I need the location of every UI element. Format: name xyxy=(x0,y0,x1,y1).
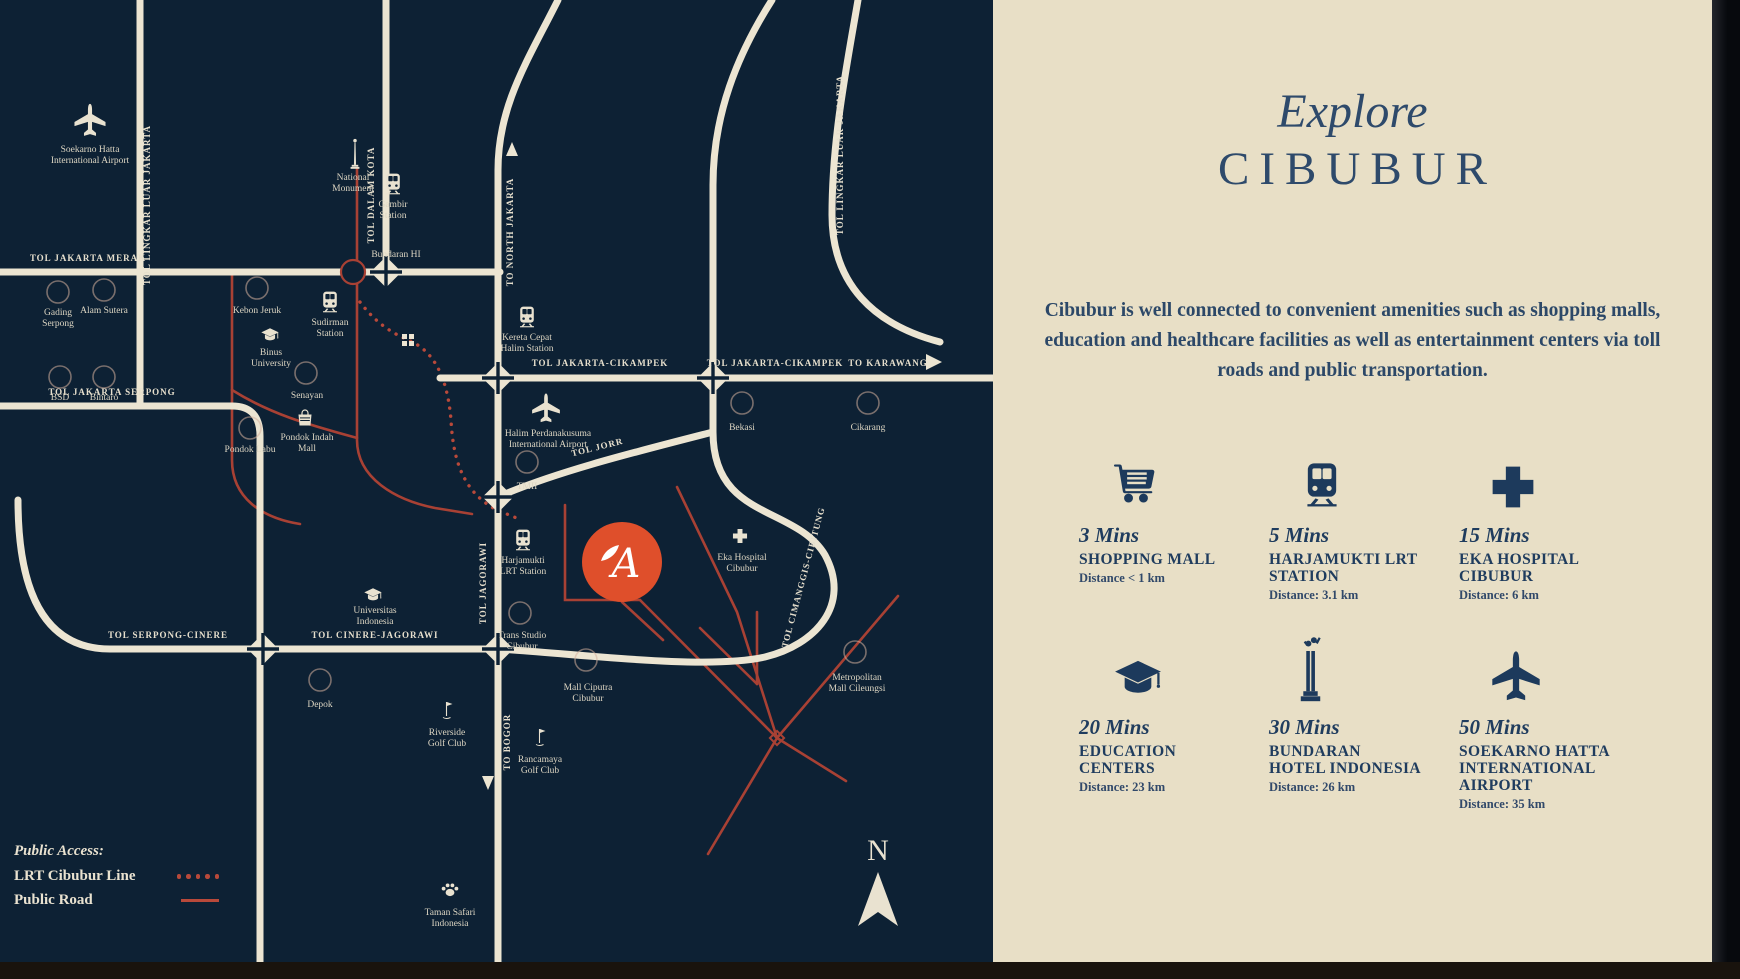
amenity-item-cart: 3 Mins SHOPPING MALL Distance < 1 km xyxy=(1079,437,1261,603)
legend-item-label: LRT Cibubur Line xyxy=(14,868,135,885)
amenity-item-monument: 30 Mins BUNDARAN HOTEL INDONESIA Distanc… xyxy=(1269,629,1451,812)
amenity-minutes: 3 Mins xyxy=(1079,523,1261,548)
amenity-name: EDUCATION CENTERS xyxy=(1079,743,1261,777)
map-road-label: TOL JAKARTA-CIKAMPEK xyxy=(707,358,844,368)
map-place-label: RiversideGolf Club xyxy=(428,728,467,749)
dotted-line-sample xyxy=(177,874,220,879)
solid-line-sample xyxy=(181,899,219,902)
map-place-label: GambirStation xyxy=(378,200,408,221)
map-place-label: Bundaran HI xyxy=(371,250,420,260)
map-road-label: TOL JAKARTA-CIKAMPEK xyxy=(532,358,669,368)
map-place-label: RancamayaGolf Club xyxy=(518,755,563,776)
heading-main: CIBUBUR xyxy=(993,142,1712,196)
amenity-minutes: 30 Mins xyxy=(1269,715,1451,740)
legend-item: LRT Cibubur Line xyxy=(14,868,219,885)
legend-item-label: Public Road xyxy=(14,892,93,909)
train-icon xyxy=(1297,437,1451,513)
map-place-label: Pondok Labu xyxy=(225,445,276,455)
amenity-item-train: 5 Mins HARJAMUKTI LRT STATION Distance: … xyxy=(1269,437,1451,603)
map-road-label: TOL DALAM KOTA xyxy=(366,147,376,244)
amenity-item-plane: 50 Mins SOEKARNO HATTA INTERNATIONAL AIR… xyxy=(1459,629,1659,812)
map-road-label: TOL JAKARTA MERAK xyxy=(30,253,146,263)
map-place-label: BSD xyxy=(51,393,70,403)
amenity-distance: Distance: 6 km xyxy=(1459,588,1659,603)
right-dark-strip xyxy=(1712,0,1740,979)
amenity-minutes: 5 Mins xyxy=(1269,523,1451,548)
map-road-label: TOL CINERE-JAGORAWI xyxy=(311,630,438,640)
legend-item: Public Road xyxy=(14,892,219,909)
map-place-label: Halim PerdanakusumaInternational Airport xyxy=(505,429,592,450)
amenity-name: BUNDARAN HOTEL INDONESIA xyxy=(1269,743,1451,777)
map-place-label: Depok xyxy=(307,700,333,710)
map-place-label: TMII xyxy=(517,482,538,492)
map-road-label: TOL LINGKAR LUAR JAKARTA xyxy=(142,125,152,285)
intro-paragraph: Cibubur is well connected to convenient … xyxy=(1044,296,1662,387)
amenity-name: SHOPPING MALL xyxy=(1079,551,1261,568)
amenity-distance: Distance: 26 km xyxy=(1269,780,1451,795)
brochure-page: A N TOL JAKARTA MERAKTOL JAKARTA SERPONG… xyxy=(0,0,1740,979)
project-location-marker: A xyxy=(582,522,662,602)
map-road-label: TOL LINGKAR LUAR JAKARTA xyxy=(835,75,845,235)
amenity-minutes: 20 Mins xyxy=(1079,715,1261,740)
amenity-distance: Distance: 35 km xyxy=(1459,797,1659,812)
map-road-label: TOL SERPONG-CINERE xyxy=(108,630,228,640)
plane-icon xyxy=(1487,629,1659,705)
compass-n-label: N xyxy=(867,834,889,867)
amenity-distance: Distance: 23 km xyxy=(1079,780,1261,795)
amenity-item-cap: 20 Mins EDUCATION CENTERS Distance: 23 k… xyxy=(1079,629,1261,812)
cap-icon xyxy=(1107,629,1261,705)
map-place-label: Bintaro xyxy=(90,393,119,403)
map-place-label: NationalMonument xyxy=(332,173,374,194)
map-road-label: TO BOGOR xyxy=(502,714,512,771)
map-legend: Public Access: LRT Cibubur LinePublic Ro… xyxy=(14,843,219,916)
legend-title: Public Access: xyxy=(14,843,219,860)
amenity-distance: Distance: 3.1 km xyxy=(1269,588,1451,603)
map-place-label: Kebon Jeruk xyxy=(233,306,282,316)
map-section: A N TOL JAKARTA MERAKTOL JAKARTA SERPONG… xyxy=(0,0,993,964)
map-place-label: HarjamuktiLRT Station xyxy=(500,556,547,577)
map-road-label: TO NORTH JAKARTA xyxy=(505,178,515,287)
map-place-label: Kereta CepatHalim Station xyxy=(500,333,553,354)
cibubur-map: A N TOL JAKARTA MERAKTOL JAKARTA SERPONG… xyxy=(0,0,993,964)
panel-heading: Explore CIBUBUR xyxy=(993,88,1712,196)
amenity-name: EKA HOSPITAL CIBUBUR xyxy=(1459,551,1659,585)
cross-icon xyxy=(1487,437,1659,513)
map-place-label: MetropolitanMall Cileungsi xyxy=(829,673,886,694)
map-place-label: SudirmanStation xyxy=(312,318,349,339)
map-place-label: GadingSerpong xyxy=(42,308,74,329)
map-place-label: UniversitasIndonesia xyxy=(353,606,397,627)
amenity-minutes: 50 Mins xyxy=(1459,715,1659,740)
map-place-label: Bekasi xyxy=(729,423,755,433)
project-logo-letter: A xyxy=(608,541,641,587)
map-place-label: Soekarno HattaInternational Airport xyxy=(51,145,130,166)
monument-icon xyxy=(1297,629,1451,705)
map-place-label: Senayan xyxy=(291,391,323,401)
heading-script: Explore xyxy=(993,88,1712,136)
bundaran-hi-roundabout xyxy=(341,260,365,284)
info-panel: Explore CIBUBUR Cibubur is well connecte… xyxy=(993,0,1712,962)
map-place-label: Alam Sutera xyxy=(80,306,129,316)
amenity-name: HARJAMUKTI LRT STATION xyxy=(1269,551,1451,585)
amenity-name: SOEKARNO HATTA INTERNATIONAL AIRPORT xyxy=(1459,743,1659,794)
map-place-label: Cikarang xyxy=(851,423,886,433)
amenity-item-cross: 15 Mins EKA HOSPITAL CIBUBUR Distance: 6… xyxy=(1459,437,1659,603)
map-road-label: TO KARAWANG xyxy=(848,358,928,368)
map-road-label: TOL JAGORAWI xyxy=(478,542,488,624)
amenity-distance: Distance < 1 km xyxy=(1079,571,1261,586)
cart-icon xyxy=(1107,437,1261,513)
amenities-grid: 3 Mins SHOPPING MALL Distance < 1 km 5 M… xyxy=(1079,437,1659,812)
bottom-dark-strip xyxy=(0,962,1740,979)
amenity-minutes: 15 Mins xyxy=(1459,523,1659,548)
